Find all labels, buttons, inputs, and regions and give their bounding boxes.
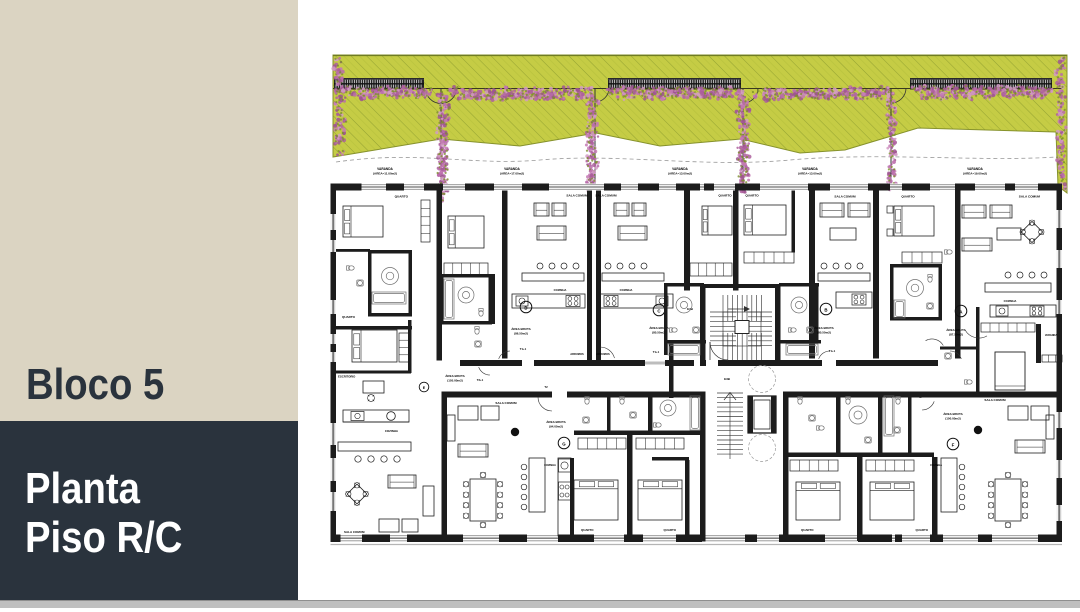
svg-text:(AREA=17.00m2): (AREA=17.00m2)	[500, 172, 524, 176]
svg-text:SALA COMUM: SALA COMUM	[566, 194, 588, 198]
svg-text:QUARTO: QUARTO	[916, 528, 929, 532]
svg-text:T2+1: T2+1	[477, 378, 484, 382]
svg-text:ÁREA BRUTA: ÁREA BRUTA	[546, 419, 566, 424]
svg-text:VARANDA: VARANDA	[802, 167, 818, 171]
svg-text:COZINHA: COZINHA	[1004, 299, 1017, 303]
svg-text:E3B: E3B	[687, 307, 694, 311]
svg-text:(100.00m2): (100.00m2)	[945, 417, 961, 421]
svg-text:VARANDA: VARANDA	[377, 167, 393, 171]
svg-text:(AREA=13.00m2): (AREA=13.00m2)	[798, 172, 822, 176]
svg-text:COZINHA: COZINHA	[930, 463, 942, 467]
svg-text:ARRUMOS: ARRUMOS	[570, 352, 584, 356]
svg-text:COZINHA: COZINHA	[544, 463, 556, 467]
svg-text:T1+1: T1+1	[653, 350, 660, 354]
svg-text:VARANDA: VARANDA	[504, 167, 520, 171]
svg-text:SALA COMUM: SALA COMUM	[834, 195, 856, 199]
svg-text:ÁREA BRUTA: ÁREA BRUTA	[946, 327, 966, 332]
svg-text:(80.50m2): (80.50m2)	[652, 331, 666, 335]
svg-text:SALA COMUM: SALA COMUM	[495, 401, 517, 405]
svg-text:B: B	[824, 308, 827, 313]
svg-text:ÁREA BRUTA: ÁREA BRUTA	[445, 373, 465, 378]
svg-text:QUARTO: QUARTO	[901, 195, 915, 199]
svg-text:COZINHA: COZINHA	[620, 288, 633, 292]
svg-text:QUARTO: QUARTO	[664, 528, 677, 532]
svg-text:E3B: E3B	[724, 377, 731, 381]
svg-text:QUARTO: QUARTO	[801, 528, 814, 532]
svg-text:QUARTO: QUARTO	[342, 315, 356, 319]
svg-text:SALA COMUM: SALA COMUM	[984, 398, 1006, 402]
svg-text:(AREA=13.00m2): (AREA=13.00m2)	[668, 172, 692, 176]
svg-text:ÁREA BRUTA: ÁREA BRUTA	[943, 411, 963, 416]
svg-text:ÁREA BRUTA: ÁREA BRUTA	[814, 325, 834, 330]
svg-text:COZINHA: COZINHA	[554, 288, 567, 292]
svg-text:(80.50m2): (80.50m2)	[817, 331, 831, 335]
svg-text:VARANDA: VARANDA	[1045, 334, 1058, 337]
svg-text:QUARTO: QUARTO	[745, 194, 759, 198]
svg-text:SALA COMUM: SALA COMUM	[1019, 195, 1041, 199]
svg-text:T1+1: T1+1	[520, 347, 527, 351]
svg-text:T2: T2	[544, 385, 548, 389]
svg-text:SALA COMUM: SALA COMUM	[344, 530, 365, 534]
svg-text:(105.00m2): (105.00m2)	[447, 379, 463, 383]
svg-text:(86.50m2): (86.50m2)	[514, 332, 528, 336]
svg-text:ARRUMOS: ARRUMOS	[596, 352, 610, 356]
svg-text:QUARTO: QUARTO	[395, 195, 409, 199]
svg-text:(AREA=19.00m2): (AREA=19.00m2)	[963, 172, 987, 176]
svg-text:SALA COMUM: SALA COMUM	[595, 194, 617, 198]
svg-text:VARANDA: VARANDA	[672, 167, 688, 171]
svg-text:VARANDA: VARANDA	[967, 167, 983, 171]
svg-text:D: D	[524, 306, 527, 311]
svg-text:COZINHA: COZINHA	[385, 429, 399, 433]
svg-text:(AREA=11.00m2): (AREA=11.00m2)	[373, 172, 397, 176]
svg-text:G: G	[562, 442, 566, 447]
svg-text:ESCRITORIO: ESCRITORIO	[338, 375, 356, 379]
svg-text:QUARTO: QUARTO	[718, 194, 732, 198]
svg-text:QUARTO: QUARTO	[581, 528, 594, 532]
svg-text:ÁREA BRUTA: ÁREA BRUTA	[511, 326, 531, 331]
svg-text:F: F	[952, 443, 955, 448]
svg-text:(87.50m2): (87.50m2)	[949, 333, 963, 337]
svg-text:(94.00m2): (94.00m2)	[549, 425, 563, 429]
